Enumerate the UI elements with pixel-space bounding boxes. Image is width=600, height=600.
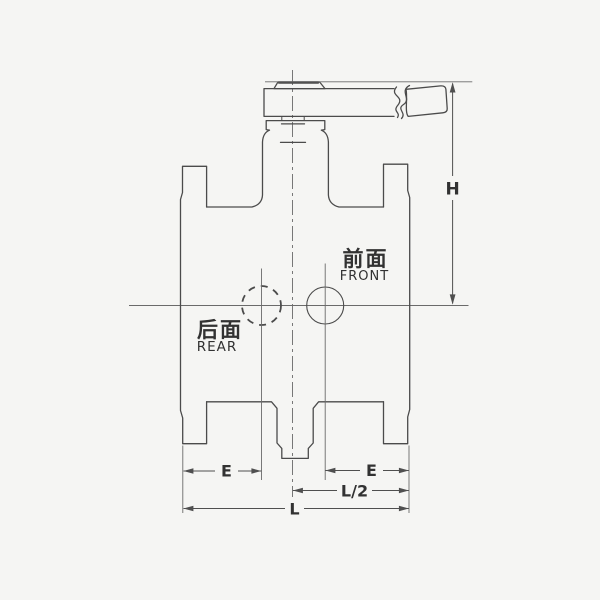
front-label-en: FRONT — [340, 269, 389, 284]
dim-label-H: H — [445, 180, 459, 200]
dim-label-L: L — [289, 500, 299, 519]
paper-background — [0, 0, 600, 600]
dim-label-L2: L/2 — [341, 482, 368, 501]
dim-label-E-left: E — [221, 462, 232, 481]
front-label-cn: 前面 — [343, 247, 389, 271]
valve-technical-drawing: 前面 FRONT 后面 REAR H E E L/2 L — [0, 0, 600, 600]
rear-label-en: REAR — [197, 339, 238, 355]
drawing-canvas: 前面 FRONT 后面 REAR H E E L/2 L — [0, 0, 600, 600]
dim-label-E-right: E — [366, 461, 377, 480]
